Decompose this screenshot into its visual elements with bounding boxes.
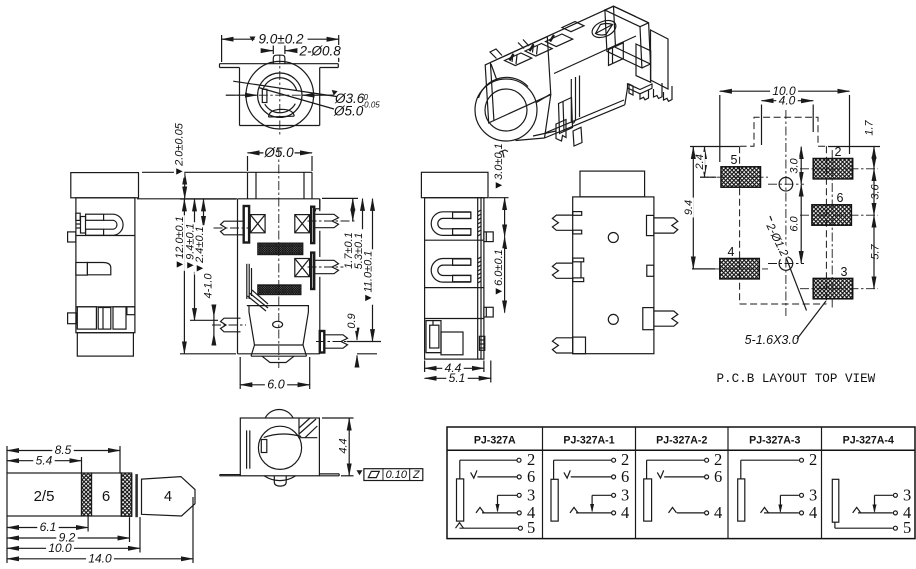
svg-text:▼2.0±0.05: ▼2.0±0.05: [174, 122, 186, 177]
svg-text:6: 6: [621, 467, 629, 486]
svg-text:PJ-327A-1: PJ-327A-1: [563, 435, 614, 447]
svg-text:3: 3: [841, 265, 848, 279]
svg-text:10.0: 10.0: [48, 541, 72, 555]
svg-text:6.0: 6.0: [267, 378, 284, 392]
svg-text:PJ-327A-4: PJ-327A-4: [843, 435, 894, 447]
svg-text:9.4: 9.4: [683, 200, 695, 215]
svg-text:PJ-327A: PJ-327A: [474, 435, 516, 447]
svg-text:3: 3: [809, 485, 817, 504]
svg-text:-0.05: -0.05: [362, 101, 381, 110]
svg-text:5-1.6X3.0: 5-1.6X3.0: [745, 333, 799, 347]
svg-text:4: 4: [714, 503, 722, 522]
svg-text:5.4: 5.4: [36, 454, 53, 468]
svg-text:14.0: 14.0: [88, 552, 112, 566]
svg-text:Z: Z: [412, 469, 421, 481]
svg-text:4: 4: [164, 489, 172, 505]
svg-text:4: 4: [809, 503, 817, 522]
svg-text:5.1: 5.1: [449, 371, 466, 385]
svg-text:2: 2: [809, 450, 817, 469]
svg-text:5: 5: [527, 518, 535, 537]
svg-text:PJ-327A-2: PJ-327A-2: [656, 435, 707, 447]
svg-text:3: 3: [621, 485, 629, 504]
svg-text:PJ-327A-3: PJ-327A-3: [749, 435, 800, 447]
svg-text:5.7: 5.7: [870, 243, 882, 259]
svg-text:4: 4: [728, 245, 735, 259]
svg-text:4.4: 4.4: [338, 438, 350, 453]
svg-text:4.0: 4.0: [779, 94, 796, 108]
svg-text:3: 3: [903, 485, 911, 504]
svg-text:4: 4: [621, 503, 629, 522]
svg-text:3: 3: [527, 485, 535, 504]
svg-text:2-Ø0.8: 2-Ø0.8: [299, 44, 342, 59]
svg-text:▼2.4±0.1: ▼2.4±0.1: [194, 226, 206, 274]
svg-text:6: 6: [102, 488, 110, 505]
svg-text:3.6: 3.6: [870, 183, 882, 199]
svg-text:2.4: 2.4: [694, 154, 706, 170]
svg-text:0.10: 0.10: [386, 469, 408, 481]
svg-text:Ø5.0: Ø5.0: [333, 104, 364, 119]
svg-text:6.1: 6.1: [40, 520, 57, 534]
svg-text:2/5: 2/5: [34, 488, 55, 505]
svg-text:8.5: 8.5: [55, 443, 72, 457]
svg-text:0.9: 0.9: [346, 313, 358, 328]
svg-text:6.0: 6.0: [789, 215, 801, 231]
svg-text:▼6.0±0.1: ▼6.0±0.1: [493, 249, 505, 297]
svg-text:4-1.0: 4-1.0: [203, 273, 215, 299]
svg-text:2: 2: [835, 145, 842, 159]
svg-text:3.0: 3.0: [789, 157, 801, 173]
svg-text:6: 6: [714, 467, 722, 486]
svg-text:9.0±0.2: 9.0±0.2: [259, 32, 304, 47]
svg-text:5: 5: [731, 153, 738, 167]
svg-text:6: 6: [837, 191, 844, 205]
svg-text:6: 6: [527, 467, 535, 486]
svg-text:5: 5: [903, 518, 911, 537]
svg-text:P.C.B LAYOUT TOP VIEW: P.C.B LAYOUT TOP VIEW: [717, 372, 876, 386]
svg-text:▼11.0±0.1: ▼11.0±0.1: [363, 251, 375, 304]
svg-text:1.7: 1.7: [864, 119, 876, 135]
